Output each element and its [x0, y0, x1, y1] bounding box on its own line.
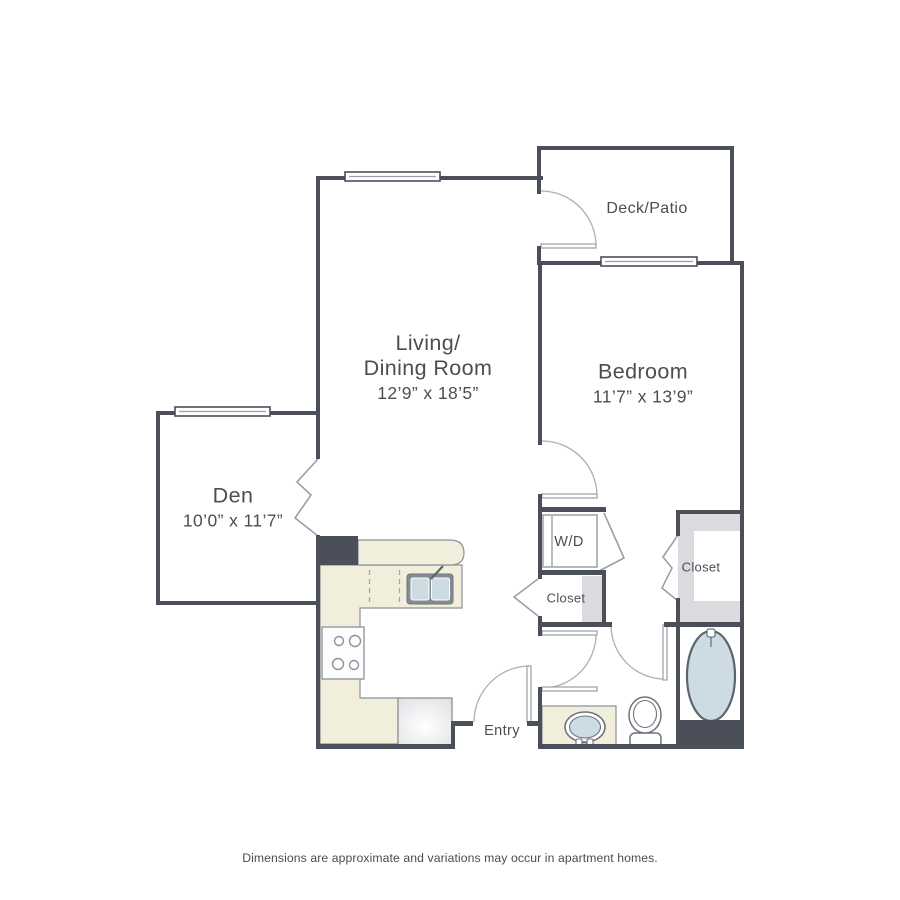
living-room-label: Living/ Dining Room 12’9” x 18’5”	[364, 331, 493, 405]
deck-patio-label: Deck/Patio	[606, 200, 687, 218]
wall-hall-west-lower	[538, 687, 542, 749]
bedroom-door-arc	[542, 441, 597, 496]
wall-entry-jog	[451, 721, 455, 749]
wall-tubroom-west	[676, 622, 680, 749]
living-room-dimensions: 12’9” x 18’5”	[364, 381, 493, 405]
bedroom-closet-bifold-door	[662, 535, 678, 601]
stove-icon	[322, 627, 364, 679]
den-french-doors	[295, 459, 318, 536]
floorplan-canvas: Living/ Dining Room 12’9” x 18’5” Bedroo…	[0, 0, 900, 900]
wd-bifold-door	[599, 513, 624, 571]
wall-bedroom-closet-top	[676, 510, 744, 514]
den-name: Den	[183, 484, 283, 509]
kitchen	[320, 536, 464, 745]
hall-closet-bifold-door	[514, 579, 538, 616]
entry-door-leaf	[527, 666, 531, 722]
living-room-name-line1: Living/	[364, 331, 493, 356]
wall-den-west	[156, 411, 160, 605]
window-bedroom	[601, 257, 697, 266]
bathroom-door2-arc	[611, 625, 665, 679]
bedroom-door-leaf	[542, 494, 597, 498]
deck-door-leaf	[541, 244, 596, 248]
bathroom-door-leaf-open	[542, 631, 597, 635]
bathroom-door-arc	[542, 634, 596, 688]
living-room-name-line2: Dining Room	[364, 356, 493, 381]
wall-bedroom-closet-stub-top	[676, 510, 680, 536]
washer-dryer-label: W/D	[554, 534, 583, 550]
refrigerator-icon	[398, 698, 452, 745]
window-den	[175, 407, 270, 416]
den-dimensions: 10’0” x 11’7”	[183, 509, 283, 533]
tub-plinth-block	[680, 720, 740, 749]
doors	[474, 191, 667, 722]
floorplan-drawing	[0, 0, 900, 900]
disclaimer-text: Dimensions are approximate and variation…	[0, 851, 900, 865]
wall-hall-closet-east	[602, 570, 606, 627]
wall-hall-west-upper	[538, 616, 542, 636]
bathroom-door-leaf-closed	[542, 687, 597, 691]
bedroom-dimensions: 11’7” x 13’9”	[593, 385, 693, 409]
walls	[156, 146, 744, 749]
bedroom-name: Bedroom	[593, 360, 693, 385]
bedroom-closet-label: Closet	[682, 560, 721, 575]
window-living-room	[345, 172, 440, 181]
entry-door-arc	[474, 666, 530, 722]
wall-deck-east	[730, 146, 734, 265]
bathroom-door2-leaf	[663, 625, 667, 680]
wall-bedroom-west-lower	[538, 494, 542, 579]
wall-kitchen-bottom	[316, 744, 455, 749]
kitchen-bar-counter	[358, 540, 464, 565]
kitchen-column-block	[320, 536, 358, 565]
wall-bedroom-closet-stub-bottom	[676, 598, 680, 626]
wall-wd-top	[538, 507, 606, 512]
wall-deck-west-stub	[537, 246, 541, 265]
wall-bedroom-west-upper	[538, 263, 542, 445]
wall-bedroom-east	[740, 261, 744, 749]
wall-wd-bottom	[538, 570, 606, 575]
wall-living-west	[316, 176, 320, 459]
den-label: Den 10’0” x 11’7”	[183, 484, 283, 533]
bedroom-label: Bedroom 11’7” x 13’9”	[593, 360, 693, 409]
wall-hall-closet-bottom	[538, 622, 612, 627]
wall-deck-west-upper	[537, 146, 541, 194]
wall-den-bottom	[156, 601, 320, 605]
entry-label: Entry	[484, 723, 520, 739]
wall-deck-top	[537, 146, 734, 150]
wall-kitchen-west	[316, 535, 320, 749]
bathtub-icon	[687, 629, 735, 721]
toilet-icon	[629, 697, 661, 748]
hall-closet-label: Closet	[547, 591, 586, 606]
deck-door-arc	[541, 191, 596, 246]
wall-entry-left-stub	[453, 721, 473, 726]
